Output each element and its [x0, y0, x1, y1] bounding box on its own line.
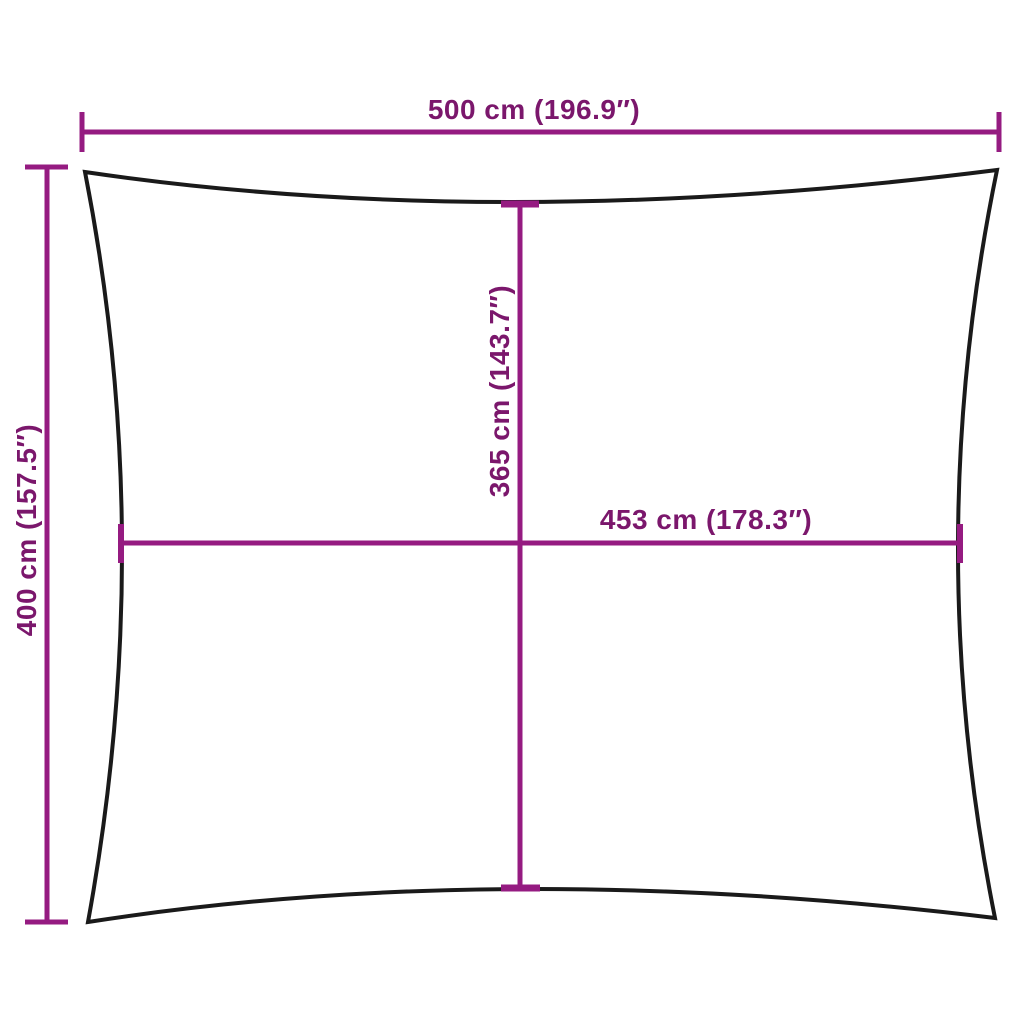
- shade-sail-outline: [85, 170, 997, 922]
- dimension-label-height-center: 365 cm (143.7″): [484, 285, 515, 497]
- product-dimension-image: 500 cm (196.9″) 400 cm (157.5″) 365 cm (…: [0, 0, 1024, 1024]
- dimension-width-top: 500 cm (196.9″): [82, 94, 999, 152]
- dimension-width-center: 453 cm (178.3″): [121, 504, 960, 563]
- dimension-label-width-center: 453 cm (178.3″): [600, 504, 812, 535]
- dimension-label-height-left: 400 cm (157.5″): [11, 424, 42, 636]
- dimension-label-width-top: 500 cm (196.9″): [428, 94, 640, 125]
- dimension-height-left: 400 cm (157.5″): [11, 167, 68, 922]
- dimension-diagram: 500 cm (196.9″) 400 cm (157.5″) 365 cm (…: [0, 0, 1024, 1024]
